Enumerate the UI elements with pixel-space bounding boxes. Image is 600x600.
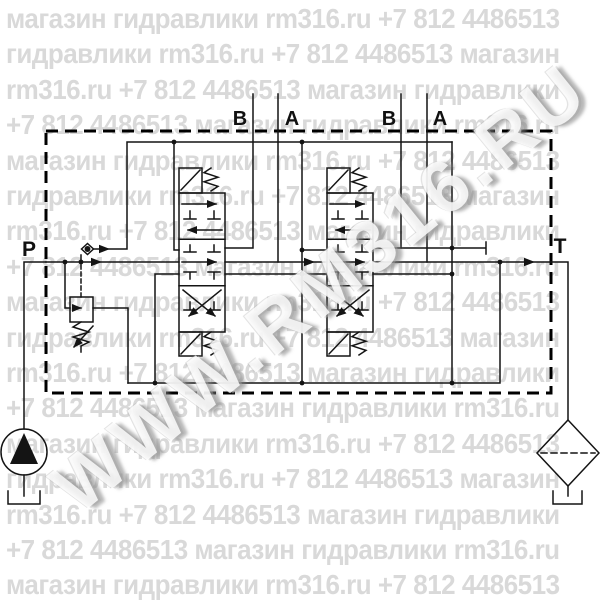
label-port-b2: B [382,108,396,130]
label-port-t: T [554,235,567,258]
relief-valve-symbol [65,262,128,383]
directional-valve-2 [327,168,373,356]
directional-valve-1 [179,168,225,356]
label-port-a2: A [433,108,447,130]
spring-icon [73,322,89,352]
schematic-page: магазин гидравлики rm316.ru +7 812 44865… [0,0,600,600]
piping-network [24,94,568,429]
label-port-b1: B [233,108,247,130]
check-valve-symbol [82,244,94,255]
label-port-p: P [22,238,36,261]
pump-symbol [1,429,47,504]
label-port-a1: A [285,108,299,130]
hydraulic-schematic: P T B A B A [0,0,600,600]
filter-symbol [537,420,599,504]
